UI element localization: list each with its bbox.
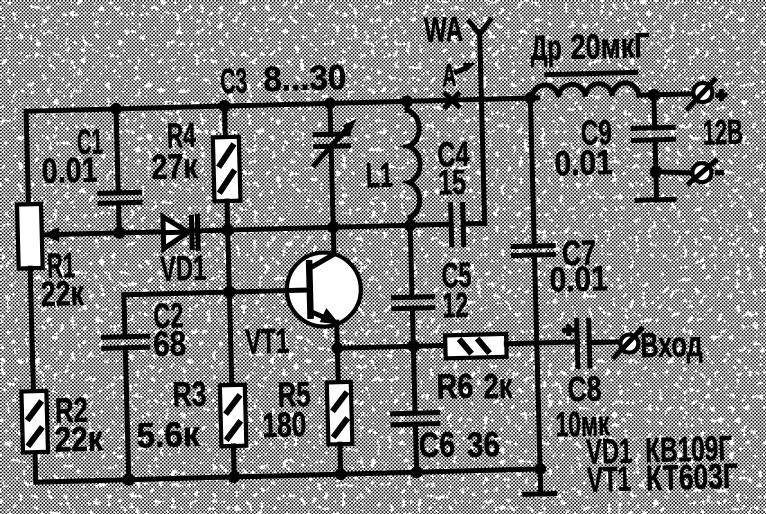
svg-text:VT1: VT1 [586, 460, 631, 500]
svg-text:8...30: 8...30 [263, 58, 347, 99]
svg-text:22к: 22к [40, 274, 84, 314]
svg-text:VT1: VT1 [245, 321, 290, 361]
svg-text:15: 15 [438, 163, 467, 203]
svg-text:Вход: Вход [640, 325, 703, 366]
svg-text:КТ603Г: КТ603Г [645, 457, 738, 498]
svg-text:27к: 27к [151, 147, 198, 187]
svg-text:R3: R3 [172, 375, 207, 415]
svg-text:0.01: 0.01 [41, 150, 98, 190]
svg-text:20мкГ: 20мкГ [570, 26, 650, 67]
svg-text:12: 12 [442, 286, 469, 326]
svg-text:C3: C3 [220, 61, 248, 101]
svg-text:5.6к: 5.6к [136, 415, 200, 456]
svg-text:C6: C6 [418, 425, 455, 465]
svg-text:VD1: VD1 [160, 249, 207, 289]
svg-text:C8: C8 [567, 369, 602, 409]
svg-text:68: 68 [153, 324, 187, 364]
svg-text:A: A [442, 57, 457, 93]
svg-text:WA: WA [424, 10, 464, 50]
svg-text:180: 180 [262, 405, 307, 445]
svg-text:Др: Др [530, 28, 562, 68]
svg-text:12В: 12В [702, 113, 743, 153]
svg-text:0.01: 0.01 [549, 259, 608, 300]
svg-text:R6: R6 [436, 367, 474, 407]
svg-text:36: 36 [466, 425, 500, 465]
svg-text:2к: 2к [483, 367, 513, 407]
svg-text:22к: 22к [54, 419, 103, 459]
svg-text:0.01: 0.01 [554, 143, 613, 184]
svg-text:L1: L1 [365, 156, 393, 196]
